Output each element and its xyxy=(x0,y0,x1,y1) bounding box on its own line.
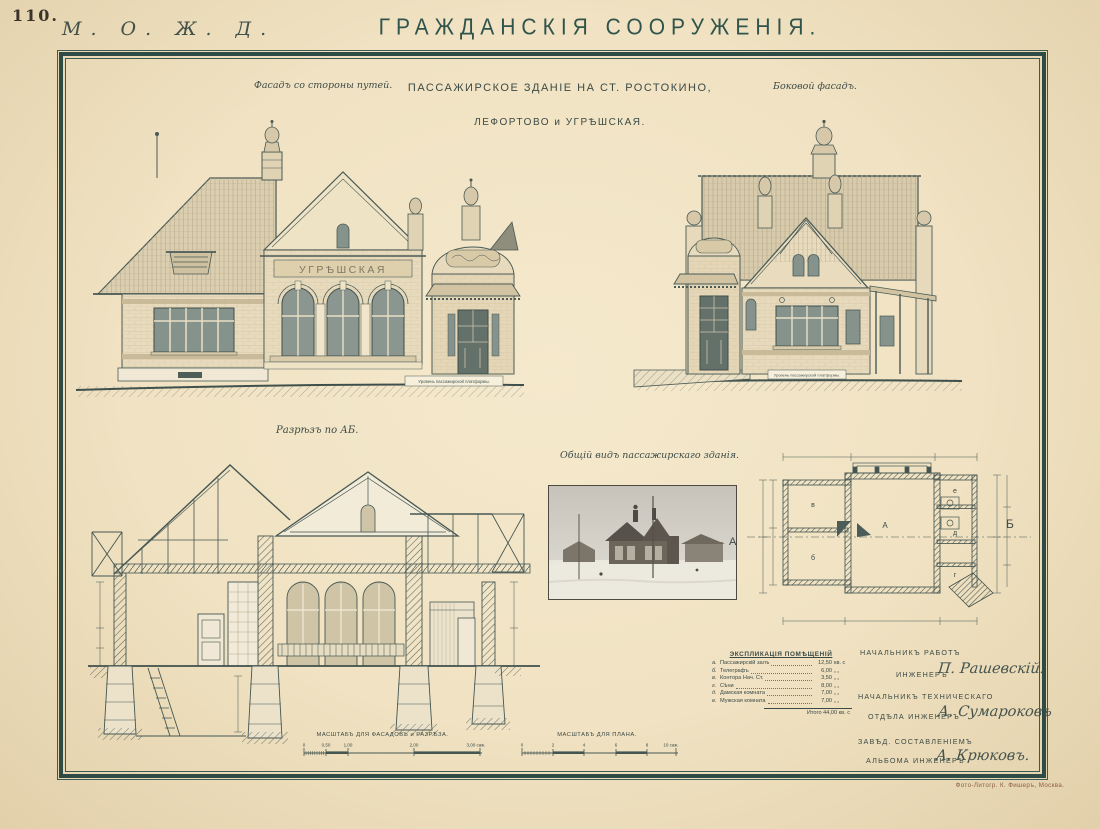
caption-side-facade: Боковой фасадъ. xyxy=(773,81,857,92)
area-unit: „ „ xyxy=(832,683,850,691)
caption-general-view: Общій видъ пассажирскаго зданія. xyxy=(560,450,739,461)
basement-ladder xyxy=(148,668,180,736)
room-name: Контора Нач. Ст. xyxy=(720,675,763,683)
gable-window xyxy=(337,224,349,248)
row-letter: в. xyxy=(712,675,720,683)
station-sign-text: УГРѢШСКАЯ xyxy=(299,264,387,276)
explication-row: в. Контора Нач. Ст. 3,50 „ „ xyxy=(712,675,850,683)
entrance-chimney xyxy=(462,206,480,240)
area-unit: „ „ xyxy=(832,690,850,698)
parapet-cartouche xyxy=(446,250,500,267)
signature-1-name: П. Рашевскій. xyxy=(937,661,1045,677)
plate-number: 110. xyxy=(12,6,59,25)
fixtures xyxy=(941,497,959,529)
tiled-stove xyxy=(228,582,258,666)
svg-text:б: б xyxy=(811,554,815,562)
tick-label: 0,50 xyxy=(322,743,331,748)
row-letter: г. xyxy=(712,683,720,691)
svg-text:А: А xyxy=(882,521,888,530)
row-letter: б. xyxy=(712,668,720,676)
room-name: Сѣни xyxy=(720,683,734,691)
explication-row: г. Сѣни 8,00 „ „ xyxy=(712,683,850,691)
tick-label: 2 xyxy=(552,743,555,748)
section-drawing xyxy=(78,432,548,762)
entrance-bay xyxy=(674,238,740,374)
explication-title: ЭКСПЛИКАЦІЯ ПОМѢЩЕНІЙ xyxy=(712,651,850,658)
signature-3-role: ЗАВѢД. СОСТАВЛЕНІЕМЪ xyxy=(858,737,973,746)
platform-level-label: Уровень пассажирской платформы. xyxy=(418,379,490,384)
plan-scale-ruler: 0 2 4 6 8 10 саж. xyxy=(519,742,683,760)
tick-label: 3,00 саж. xyxy=(466,743,485,748)
roof-dormer xyxy=(170,252,212,274)
signature-1-role: НАЧАЛЬНИКЪ РАБОТЪ xyxy=(860,648,961,657)
floor-plan-drawing: А в б е д г xyxy=(745,445,1035,645)
signature-2-role: НАЧАЛЬНИКЪ ТЕХНИЧЕСКАГО xyxy=(858,692,994,701)
left-room-interior xyxy=(198,582,258,666)
room-name: Дамская комната xyxy=(720,690,765,698)
room-area: 8,00 xyxy=(814,683,832,691)
right-canopy-truss xyxy=(492,514,524,572)
ridge-chimney xyxy=(262,120,282,180)
printer-imprint: Фото-Литогр. К. Фишеръ, Москва. xyxy=(930,782,1090,789)
plan-scale-label: МАСШТАБЪ ДЛЯ ПЛАНА. xyxy=(541,732,653,738)
explication-table: ЭКСПЛИКАЦІЯ ПОМѢЩЕНІЙ а. Пассажирскій за… xyxy=(712,651,850,716)
explication-row: б. Телеграфъ 6,00 „ „ xyxy=(712,668,850,676)
ground-line xyxy=(76,385,524,397)
room-name: Пассажирскій залъ xyxy=(720,660,769,668)
basement-vent-grate xyxy=(178,372,202,378)
platform-level-label: Уровень пассажирской платформы. xyxy=(774,373,841,378)
signature-2-name: А. Сумароковъ xyxy=(937,704,1053,720)
porch-steps xyxy=(853,463,931,473)
plan-walls xyxy=(783,473,993,607)
facade-scale-label: МАСШТАБЪ ДЛЯ ФАСАДОВЪ и РАЗРѢЗА. xyxy=(300,732,465,738)
photo-image xyxy=(549,486,736,599)
room-area: 7,00 xyxy=(814,690,832,698)
area-unit: кв. с xyxy=(832,660,850,668)
area-unit: „ „ xyxy=(832,668,850,676)
row-letter: а. xyxy=(712,660,720,668)
area-unit: „ „ xyxy=(832,675,850,683)
room-area: 3,50 xyxy=(814,675,832,683)
room-name: Мужская комната xyxy=(720,698,766,706)
left-wing-window xyxy=(151,308,237,355)
svg-text:г: г xyxy=(954,572,957,579)
signature-3-name: А. Крюковъ. xyxy=(935,748,1030,764)
explication-row: е. Мужская комната 7,00 „ „ xyxy=(712,698,850,706)
side-facade-drawing: Уровень пассажирской платформы. xyxy=(630,118,970,408)
station-photograph xyxy=(548,485,737,600)
tick-label: 8 xyxy=(646,743,649,748)
svg-text:е: е xyxy=(953,488,957,495)
row-letter: е. xyxy=(712,698,720,706)
room-area: 12,50 xyxy=(814,660,832,668)
tick-label: 4 xyxy=(583,743,586,748)
explication-row: а. Пассажирскій залъ 12,50 кв. с xyxy=(712,660,850,668)
room-name: Телеграфъ xyxy=(720,668,749,676)
tick-label: 6 xyxy=(615,743,618,748)
facade-scale-ruler: 0 0,50 1,00 2,00 3,00 саж. xyxy=(300,742,488,760)
tick-label: 1,00 xyxy=(344,743,353,748)
front-facade-drawing: УГРѢШСКАЯ xyxy=(60,118,540,408)
svg-text:в: в xyxy=(811,502,815,509)
lithograph-plate: 110. М. О. Ж. Д. ГРАЖДАНСКІЯ СООРУЖЕНІЯ.… xyxy=(0,0,1100,829)
tick-label: 0 xyxy=(303,743,306,748)
tick-label: 0 xyxy=(521,743,524,748)
plate-title: ГРАЖДАНСКІЯ СООРУЖЕНІЯ. xyxy=(300,15,900,42)
entrance-canopy xyxy=(426,284,520,296)
room-area: 6,00 xyxy=(814,668,832,676)
arched-windows xyxy=(278,281,408,356)
central-gable-block: УГРѢШСКАЯ xyxy=(260,172,426,369)
caption-front-facade: Фасадъ со стороны путей. xyxy=(254,80,392,91)
explication-total: Итого 44,00 кв. с xyxy=(764,708,852,716)
room-area: 7,00 xyxy=(814,698,832,706)
corner-stoves xyxy=(837,521,871,537)
section-marker-a: А xyxy=(729,536,736,548)
ceiling-joists xyxy=(114,564,530,573)
tick-label: 2,00 xyxy=(410,743,419,748)
row-letter: д. xyxy=(712,690,720,698)
left-wing xyxy=(93,132,281,381)
roof-structure xyxy=(92,465,524,576)
tick-label: 10 саж. xyxy=(663,743,678,748)
vestibule-interior xyxy=(430,602,475,666)
door-canopy xyxy=(674,274,738,284)
hall-interior-elevation xyxy=(278,582,404,666)
railway-monogram: М. О. Ж. Д. xyxy=(62,18,275,40)
svg-text:д: д xyxy=(953,530,957,537)
subject-heading-line1: ПАССАЖИРСКОЕ ЗДАНІЕ НА СТ. РОСТОКИНО, xyxy=(380,82,740,94)
explication-row: д. Дамская комната 7,00 „ „ xyxy=(712,690,850,698)
area-unit: „ „ xyxy=(832,698,850,706)
